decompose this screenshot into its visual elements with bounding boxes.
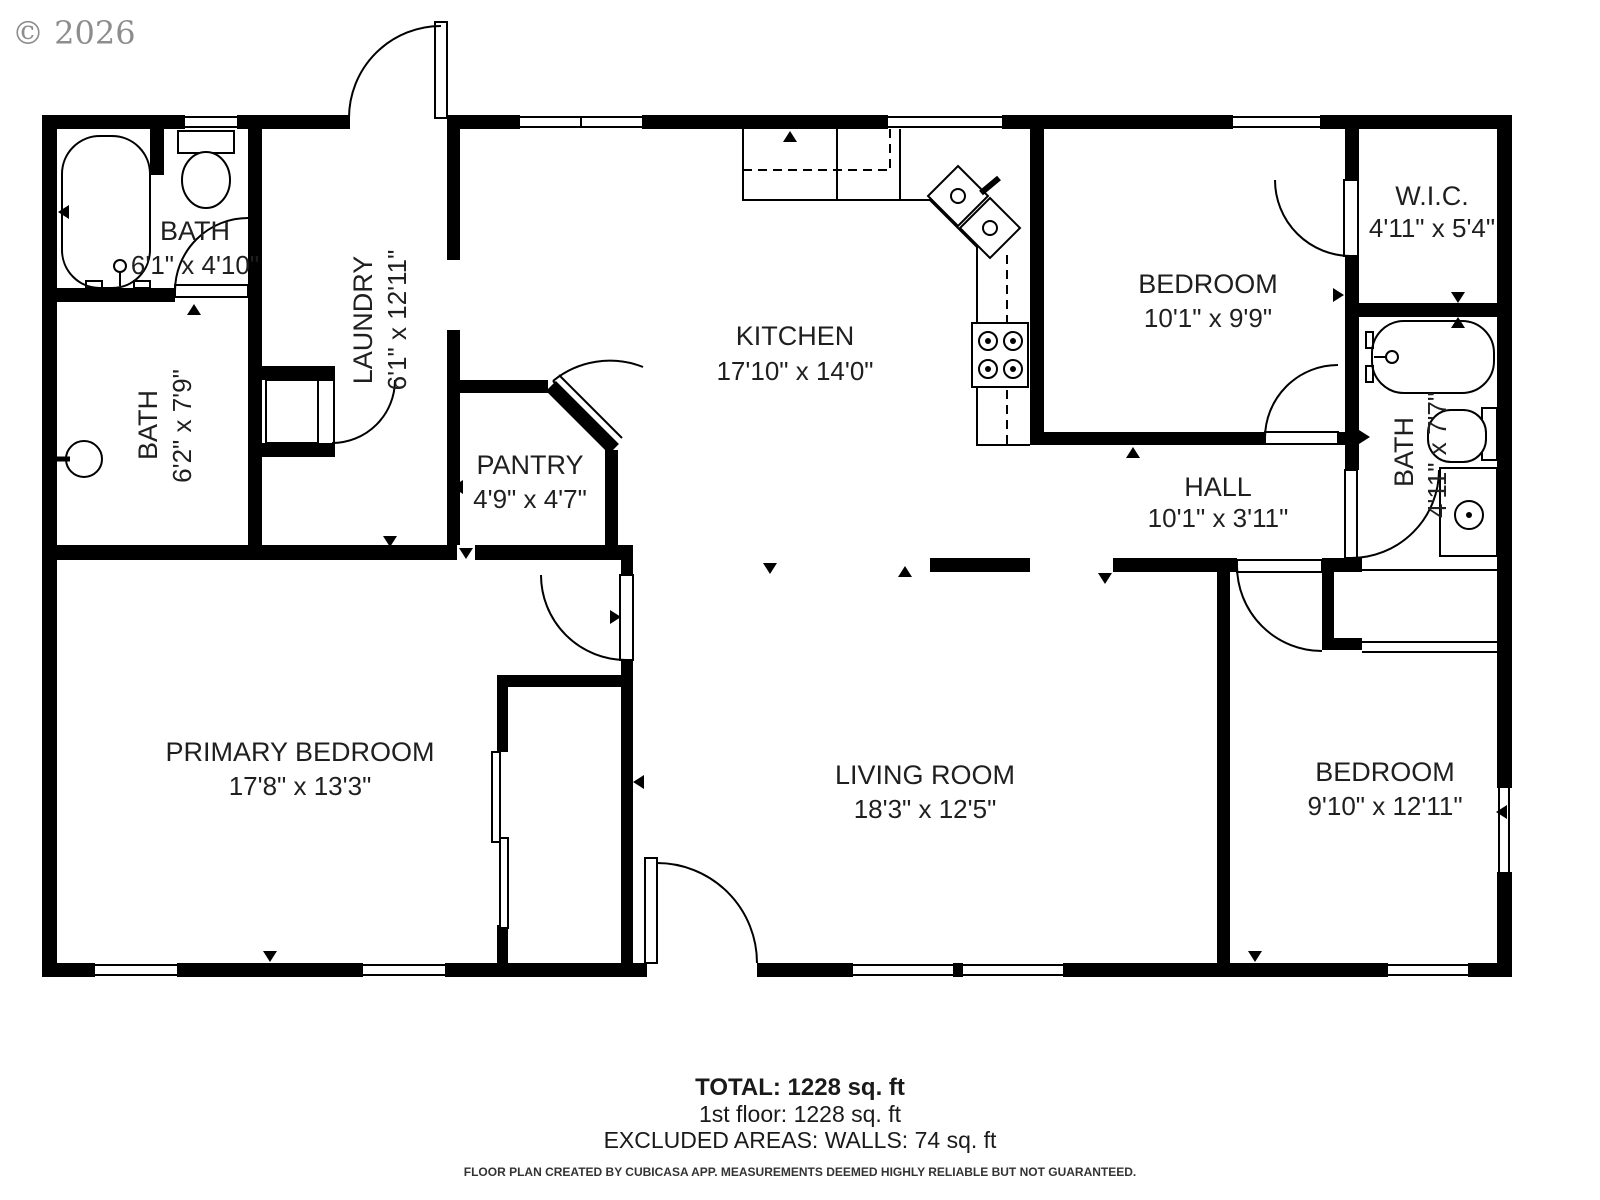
room-label-bath-top-left: BATH — [160, 216, 230, 246]
washer — [266, 380, 318, 443]
room-label-laundry: LAUNDRY — [348, 256, 378, 385]
window — [1233, 115, 1320, 129]
window — [1388, 963, 1468, 977]
window — [520, 115, 642, 129]
room-dims-bedroom-right: 9'10" x 12'11" — [1307, 791, 1462, 821]
room-label-bedroom-right: BEDROOM — [1315, 757, 1455, 787]
room-dims-primary-bedroom: 17'8" x 13'3" — [229, 771, 372, 801]
closets — [492, 570, 1497, 928]
room-label-bath-left: BATH — [133, 390, 163, 460]
room-label-primary-bedroom: PRIMARY BEDROOM — [165, 737, 434, 767]
room-dims-laundry: 6'1" x 12'11" — [382, 250, 412, 391]
summary: TOTAL: 1228 sq. ft 1st floor: 1228 sq. f… — [464, 1074, 1137, 1179]
faucet — [981, 178, 999, 193]
sliding-closet-doors — [492, 752, 508, 928]
window — [963, 963, 1063, 977]
room-dims-wic: 4'11" x 5'4" — [1369, 213, 1495, 243]
closet-front — [1362, 570, 1497, 652]
interior-walls — [57, 115, 1498, 963]
room-dims-hall: 10'1" x 3'11" — [1148, 503, 1289, 533]
bathtub — [1366, 321, 1494, 393]
room-dims-pantry: 4'9" x 4'7" — [473, 484, 587, 514]
window — [853, 963, 953, 977]
room-dims-bath-right: 4'11" x 7'7" — [1422, 392, 1452, 518]
window — [95, 963, 177, 977]
room-label-wic: W.I.C. — [1395, 181, 1469, 211]
copyright-text: © 2026 — [12, 14, 136, 52]
bedroom-top-door — [1265, 365, 1338, 444]
floor-plan: © 2026 BATH 6'1" x 4'10" LAUNDRY 6'1" x … — [0, 0, 1600, 1200]
bedroom-right-door — [1237, 560, 1322, 651]
room-dims-bath-top-left: 6'1" x 4'10" — [131, 250, 259, 280]
window — [363, 963, 445, 977]
room-label-pantry: PANTRY — [476, 450, 583, 480]
excluded-area-text: EXCLUDED AREAS: WALLS: 74 sq. ft — [604, 1127, 997, 1153]
floor-area-text: 1st floor: 1228 sq. ft — [699, 1101, 902, 1127]
room-label-living-room: LIVING ROOM — [835, 760, 1015, 790]
window — [888, 115, 1002, 129]
room-label-hall: HALL — [1184, 472, 1252, 502]
bathroom-sink — [57, 441, 102, 477]
room-label-bedroom-top: BEDROOM — [1138, 269, 1278, 299]
toilet — [178, 131, 234, 208]
wic-door — [1275, 180, 1358, 256]
stove — [972, 323, 1028, 387]
room-dims-living-room: 18'3" x 12'5" — [854, 794, 997, 824]
disclaimer-text: FLOOR PLAN CREATED BY CUBICASA APP. MEAS… — [464, 1165, 1137, 1179]
kitchen-counter — [743, 129, 1030, 445]
kitchen-fixtures — [743, 129, 1030, 445]
floor-plan-page: © 2026 BATH 6'1" x 4'10" LAUNDRY 6'1" x … — [0, 0, 1600, 1200]
front-door — [645, 858, 757, 977]
total-area-text: TOTAL: 1228 sq. ft — [695, 1074, 905, 1101]
room-label-kitchen: KITCHEN — [736, 321, 855, 351]
window — [1497, 788, 1512, 872]
room-dims-bedroom-top: 10'1" x 9'9" — [1144, 303, 1272, 333]
entry-door — [349, 22, 447, 129]
room-label-bath-right: BATH — [1389, 417, 1419, 487]
room-dims-kitchen: 17'10" x 14'0" — [716, 356, 873, 386]
window — [185, 115, 237, 129]
room-dims-bath-left: 6'2" x 7'9" — [167, 369, 197, 483]
